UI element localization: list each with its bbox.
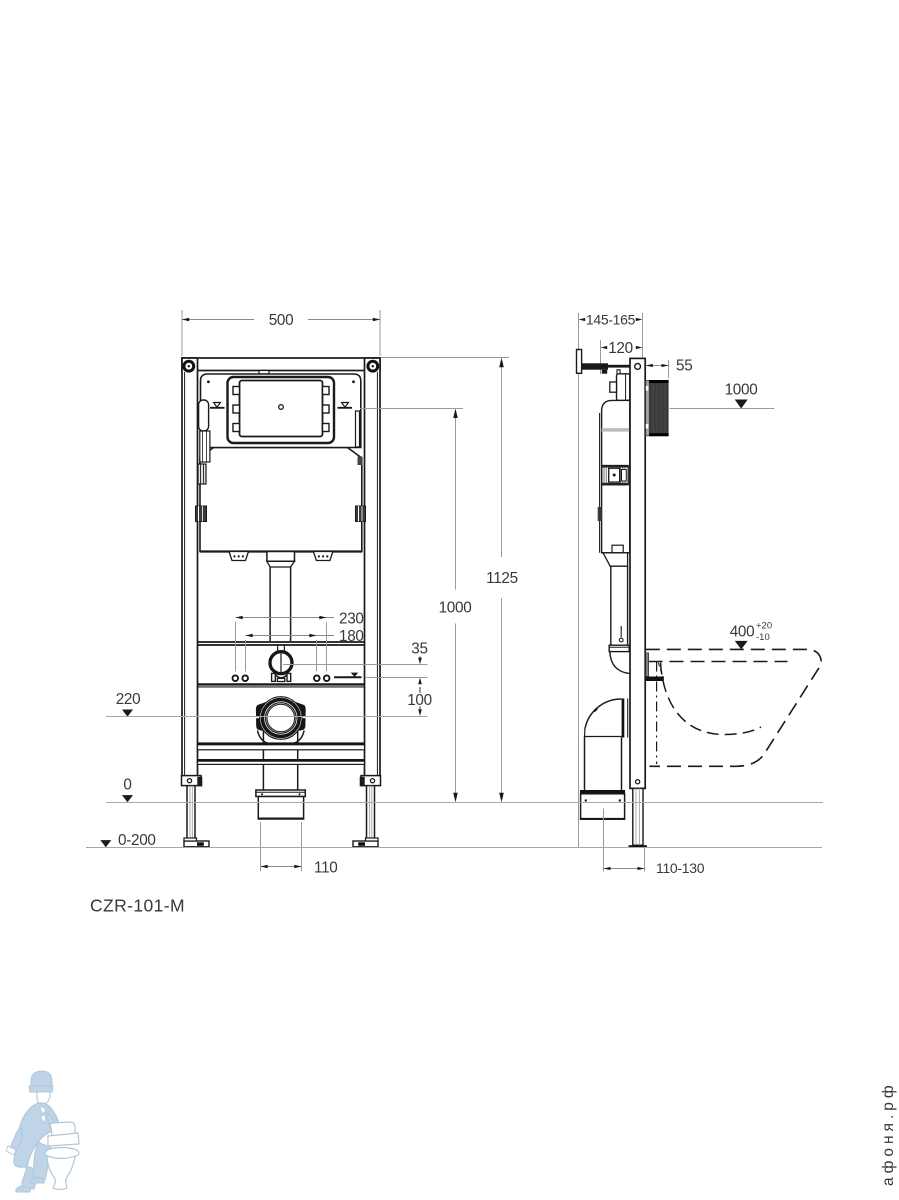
svg-text:55: 55 [676, 358, 692, 375]
svg-text:афоня.рф: афоня.рф [880, 1081, 897, 1186]
svg-text:220: 220 [116, 691, 141, 708]
svg-text:230: 230 [339, 610, 364, 627]
svg-text:110: 110 [314, 859, 338, 876]
svg-text:+20: +20 [756, 621, 772, 632]
svg-text:1000: 1000 [725, 382, 758, 399]
svg-text:145-165: 145-165 [586, 311, 636, 327]
svg-text:110-130: 110-130 [656, 860, 705, 876]
svg-text:500: 500 [269, 312, 294, 329]
svg-text:1000: 1000 [439, 600, 472, 617]
svg-text:0: 0 [123, 777, 131, 794]
svg-text:-10: -10 [756, 632, 770, 643]
svg-text:CZR-101-M: CZR-101-M [90, 896, 185, 916]
svg-text:120: 120 [608, 340, 633, 357]
svg-text:180: 180 [339, 628, 364, 645]
svg-text:400: 400 [730, 623, 755, 640]
svg-text:0-200: 0-200 [118, 832, 156, 849]
svg-text:100: 100 [407, 692, 432, 709]
svg-text:1125: 1125 [486, 570, 518, 587]
svg-text:35: 35 [411, 641, 427, 658]
